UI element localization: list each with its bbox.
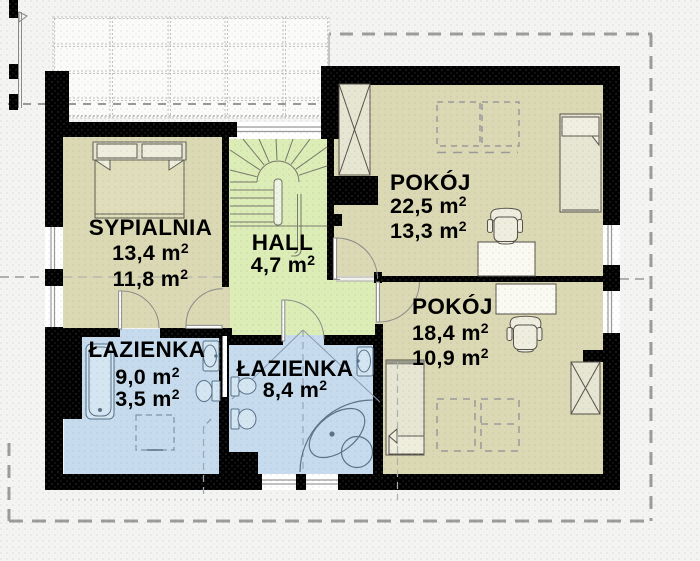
- svg-text:13,3 m2: 13,3 m2: [390, 218, 467, 243]
- svg-text:POKÓJ: POKÓJ: [412, 294, 493, 319]
- svg-text:SYPIALNIA: SYPIALNIA: [89, 215, 213, 240]
- svg-text:13,4 m2: 13,4 m2: [112, 240, 189, 265]
- svg-text:9,0 m2: 9,0 m2: [115, 364, 180, 389]
- svg-text:22,5 m2: 22,5 m2: [390, 193, 467, 218]
- svg-text:POKÓJ: POKÓJ: [390, 170, 471, 195]
- svg-text:HALL: HALL: [252, 230, 314, 255]
- svg-text:4,7 m2: 4,7 m2: [251, 252, 316, 277]
- svg-text:18,4 m2: 18,4 m2: [412, 320, 489, 345]
- svg-text:8,4 m2: 8,4 m2: [263, 377, 328, 402]
- svg-text:ŁAZIENKA: ŁAZIENKA: [89, 337, 206, 362]
- svg-text:10,9 m2: 10,9 m2: [412, 345, 489, 370]
- svg-text:11,8 m2: 11,8 m2: [113, 266, 189, 291]
- svg-text:3,5 m2: 3,5 m2: [115, 386, 180, 411]
